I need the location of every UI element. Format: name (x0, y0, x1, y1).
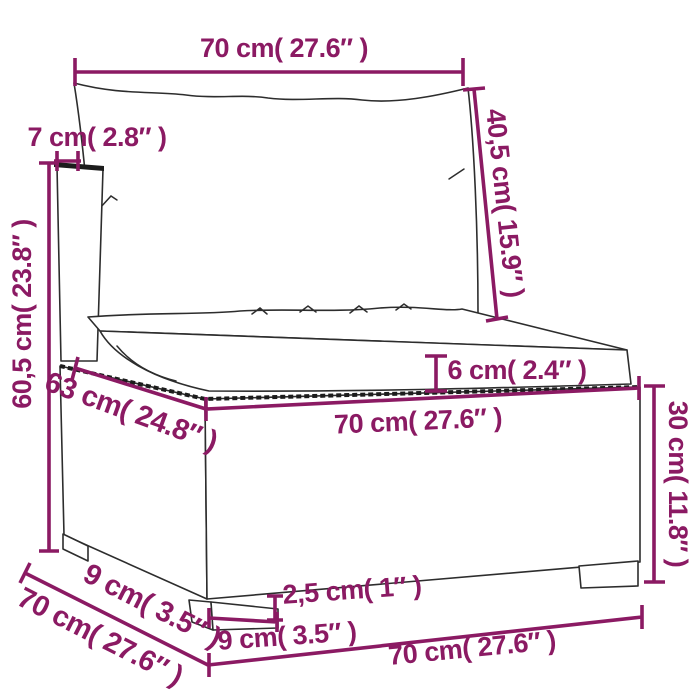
dim-back-panel-thickness-label: 7 cm( 2.8″ ) (28, 122, 167, 152)
dim-total-height-label: 60,5 cm( 23.8″ ) (7, 219, 37, 409)
back-panel (57, 166, 103, 361)
back-cushion (74, 83, 478, 328)
dim-back-cushion-height-label: 40,5 cm( 15.9″ ) (480, 107, 530, 299)
dim-back-cushion-width-label: 70 cm( 27.6″ ) (200, 33, 368, 63)
product-diagram: 70 cm( 27.6″ ) 7 cm( 2.8″ ) 60,5 cm( 23.… (0, 0, 700, 700)
dim-base-height: 30 cm( 11.8″ ) (644, 386, 693, 582)
dim-seat-cushion-thickness-label: 6 cm( 2.4″ ) (448, 355, 587, 385)
dim-back-cushion-width: 70 cm( 27.6″ ) (75, 33, 463, 86)
diagram-stage: 70 cm( 27.6″ ) 7 cm( 2.8″ ) 60,5 cm( 23.… (0, 0, 700, 700)
dim-total-height: 60,5 cm( 23.8″ ) (7, 163, 59, 551)
dim-base-height-label: 30 cm( 11.8″ ) (663, 401, 693, 568)
foot-front-right (579, 561, 638, 588)
dim-base-bottom-width-label: 70 cm( 27.6″ ) (387, 625, 557, 671)
